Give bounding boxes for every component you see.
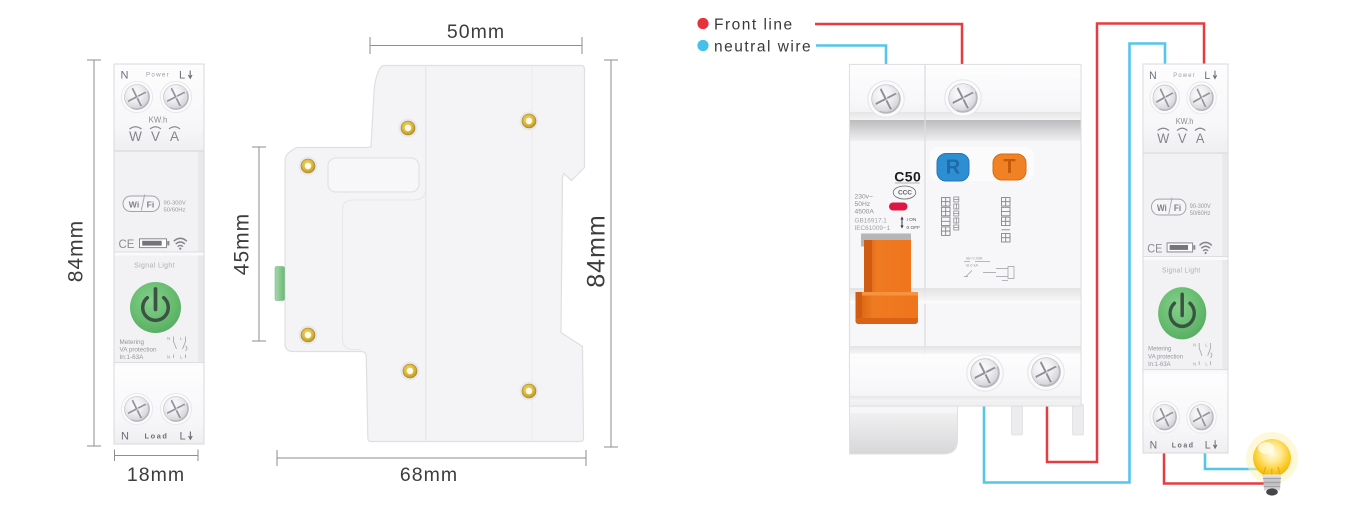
svg-text:Front line: Front line <box>714 17 794 34</box>
svg-text:84mm: 84mm <box>65 220 88 282</box>
svg-text:IEC61009−1: IEC61009−1 <box>855 225 891 232</box>
svg-text:I∆n 0.03A: I∆n 0.03A <box>966 257 983 261</box>
svg-text:4500A: 4500A <box>855 209 875 216</box>
svg-text:I ON: I ON <box>907 217 917 223</box>
svg-text:0 OFF: 0 OFF <box>907 225 921 231</box>
svg-text:I∆ 6 kA: I∆ 6 kA <box>966 264 978 268</box>
svg-text:50mm: 50mm <box>447 21 505 43</box>
svg-text:R: R <box>946 157 961 179</box>
svg-text:18mm: 18mm <box>127 464 185 486</box>
svg-text:neutral wire: neutral wire <box>714 39 812 56</box>
svg-text:84mm: 84mm <box>583 214 611 287</box>
svg-text:45mm: 45mm <box>231 213 254 275</box>
svg-text:GB16917.1: GB16917.1 <box>855 218 888 225</box>
svg-text:CCC: CCC <box>898 190 912 197</box>
svg-text:T: T <box>1003 156 1015 178</box>
svg-text:50Hz: 50Hz <box>855 201 871 208</box>
svg-text:68mm: 68mm <box>400 464 458 486</box>
svg-text:230v~: 230v~ <box>855 194 874 201</box>
svg-text:C50: C50 <box>894 169 921 185</box>
